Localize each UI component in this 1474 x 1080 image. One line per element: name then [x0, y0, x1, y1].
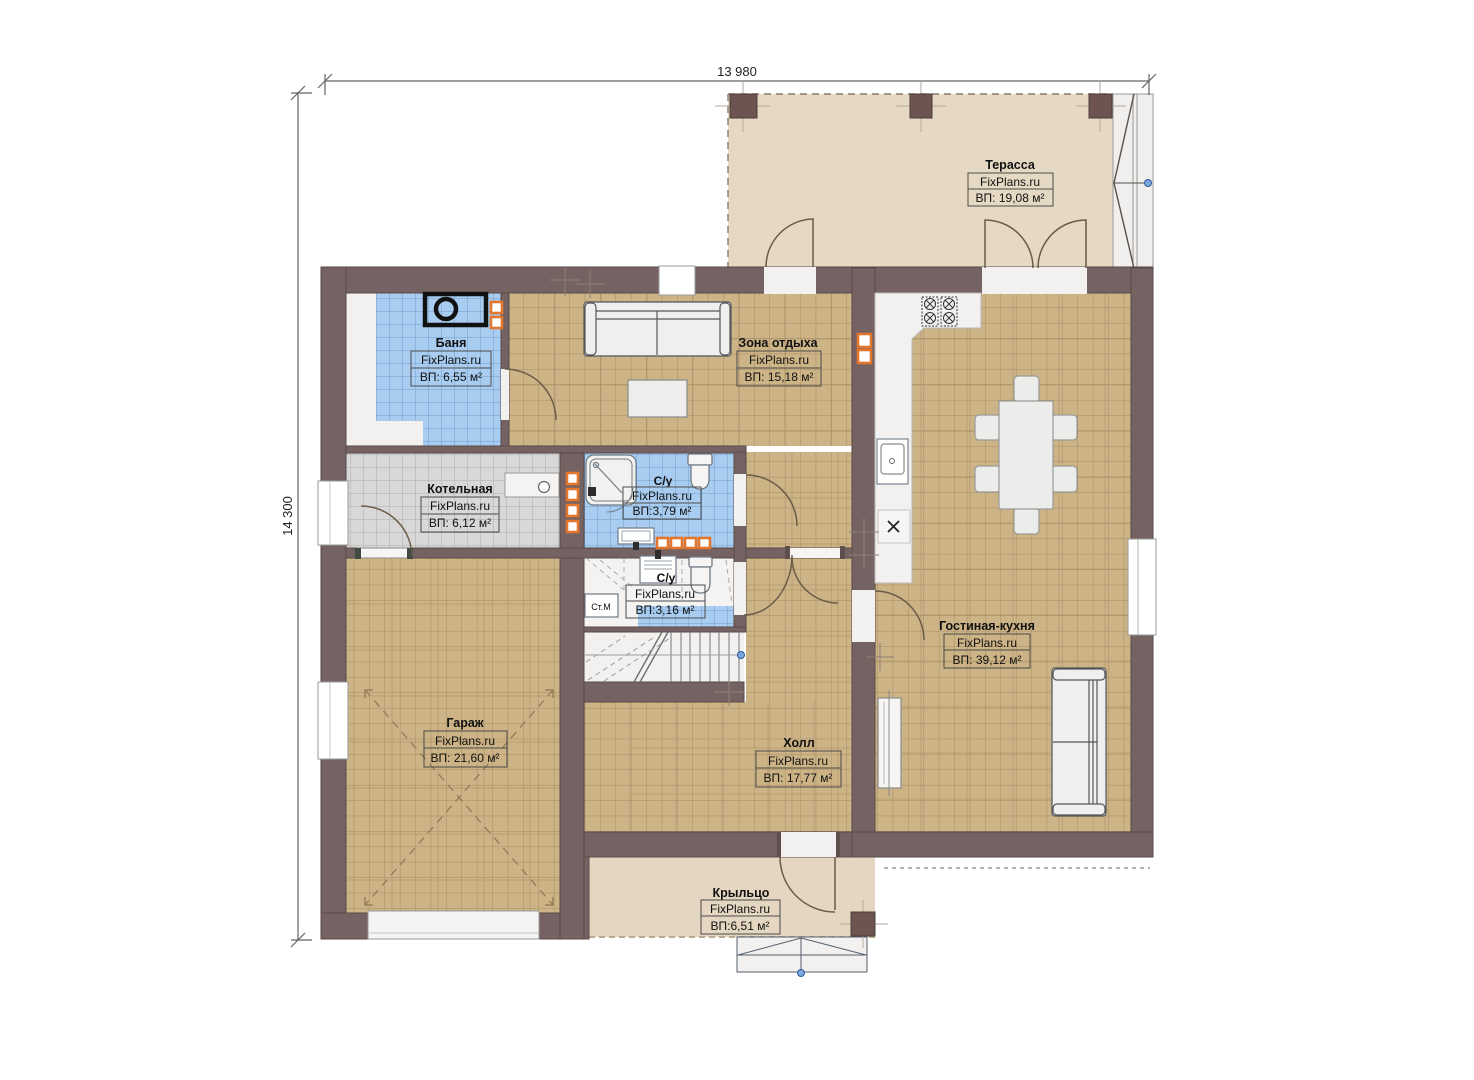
svg-text:FixPlans.ru: FixPlans.ru: [768, 754, 828, 768]
svg-text:ВП: 6,12 м²: ВП: 6,12 м²: [429, 516, 491, 530]
svg-text:ВП: 19,08 м²: ВП: 19,08 м²: [976, 191, 1045, 205]
svg-text:FixPlans.ru: FixPlans.ru: [430, 499, 490, 513]
svg-text:13 980: 13 980: [717, 64, 757, 79]
svg-text:Гараж: Гараж: [446, 716, 483, 730]
svg-text:FixPlans.ru: FixPlans.ru: [957, 636, 1017, 650]
svg-text:FixPlans.ru: FixPlans.ru: [635, 587, 695, 601]
svg-text:Гостиная-кухня: Гостиная-кухня: [939, 619, 1035, 633]
svg-text:Крыльцо: Крыльцо: [713, 886, 770, 900]
svg-text:Баня: Баня: [436, 336, 467, 350]
svg-text:ВП:3,16 м²: ВП:3,16 м²: [636, 603, 695, 617]
svg-text:FixPlans.ru: FixPlans.ru: [749, 353, 809, 367]
svg-text:Зона отдыха: Зона отдыха: [738, 336, 818, 350]
svg-text:Ст.М: Ст.М: [591, 602, 611, 612]
svg-text:ВП: 39,12 м²: ВП: 39,12 м²: [953, 653, 1022, 667]
svg-text:ВП: 15,18 м²: ВП: 15,18 м²: [745, 370, 814, 384]
svg-text:FixPlans.ru: FixPlans.ru: [632, 489, 692, 503]
svg-text:ВП: 21,60 м²: ВП: 21,60 м²: [431, 751, 500, 765]
svg-text:С/у: С/у: [657, 571, 676, 585]
svg-text:FixPlans.ru: FixPlans.ru: [435, 734, 495, 748]
svg-text:ВП: 17,77 м²: ВП: 17,77 м²: [764, 771, 833, 785]
svg-text:ВП:6,51 м²: ВП:6,51 м²: [711, 919, 770, 933]
svg-text:ВП:3,79 м²: ВП:3,79 м²: [633, 504, 692, 518]
svg-text:С/у: С/у: [654, 474, 673, 488]
svg-text:Терасса: Терасса: [985, 158, 1036, 172]
svg-text:FixPlans.ru: FixPlans.ru: [980, 175, 1040, 189]
svg-text:ВП: 6,55 м²: ВП: 6,55 м²: [420, 370, 482, 384]
svg-text:14 300: 14 300: [280, 496, 295, 536]
svg-text:FixPlans.ru: FixPlans.ru: [421, 353, 481, 367]
svg-text:Котельная: Котельная: [427, 482, 492, 496]
svg-text:FixPlans.ru: FixPlans.ru: [710, 902, 770, 916]
svg-text:Холл: Холл: [783, 736, 814, 750]
